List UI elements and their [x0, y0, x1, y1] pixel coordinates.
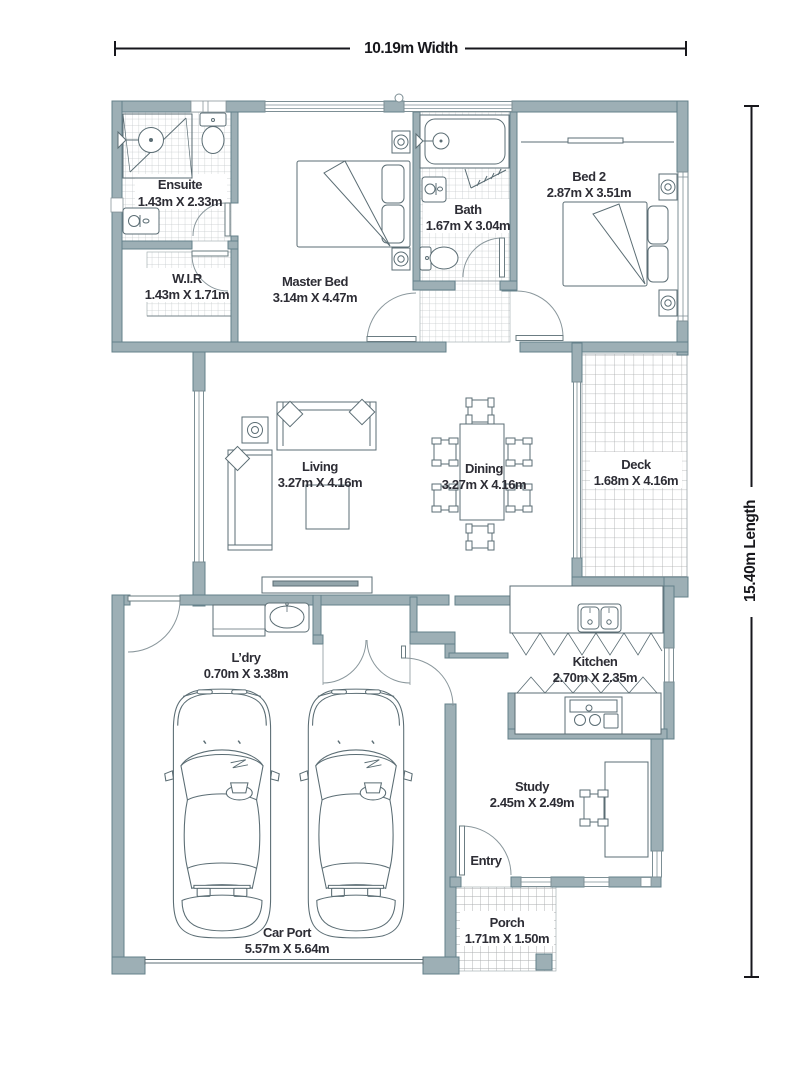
- svg-text:Living: Living: [302, 459, 338, 474]
- svg-text:1.68m X 4.16m: 1.68m X 4.16m: [594, 473, 678, 488]
- svg-text:3.27m X 4.16m: 3.27m X 4.16m: [442, 477, 526, 492]
- svg-text:1.43m X 1.71m: 1.43m X 1.71m: [145, 287, 229, 302]
- svg-text:5.57m X 5.64m: 5.57m X 5.64m: [245, 941, 329, 956]
- svg-text:2.70m X 2.35m: 2.70m X 2.35m: [553, 670, 637, 685]
- svg-text:Deck: Deck: [621, 457, 652, 472]
- svg-text:1.43m X 2.33m: 1.43m X 2.33m: [138, 194, 222, 209]
- svg-text:Dining: Dining: [465, 461, 503, 476]
- svg-text:Car Port: Car Port: [263, 925, 312, 940]
- svg-text:10.19m Width: 10.19m Width: [364, 40, 458, 57]
- svg-text:Bed 2: Bed 2: [572, 169, 606, 184]
- svg-text:3.14m X 4.47m: 3.14m X 4.47m: [273, 290, 357, 305]
- svg-text:Master Bed: Master Bed: [282, 274, 349, 289]
- svg-text:0.70m X 3.38m: 0.70m X 3.38m: [204, 666, 288, 681]
- svg-text:1.67m X 3.04m: 1.67m X 3.04m: [426, 218, 510, 233]
- svg-text:15.40m Length: 15.40m Length: [742, 500, 759, 602]
- svg-text:Porch: Porch: [490, 915, 525, 930]
- svg-text:2.45m X 2.49m: 2.45m X 2.49m: [490, 795, 574, 810]
- svg-text:Bath: Bath: [454, 202, 482, 217]
- svg-text:L’dry: L’dry: [231, 650, 261, 665]
- svg-text:Entry: Entry: [470, 853, 502, 868]
- svg-text:Kitchen: Kitchen: [573, 654, 618, 669]
- svg-text:1.71m X 1.50m: 1.71m X 1.50m: [465, 931, 549, 946]
- svg-text:2.87m X 3.51m: 2.87m X 3.51m: [547, 185, 631, 200]
- svg-text:W.I.R: W.I.R: [172, 271, 203, 286]
- svg-text:Ensuite: Ensuite: [158, 177, 202, 192]
- svg-text:3.27m X 4.16m: 3.27m X 4.16m: [278, 475, 362, 490]
- svg-text:Study: Study: [515, 779, 550, 794]
